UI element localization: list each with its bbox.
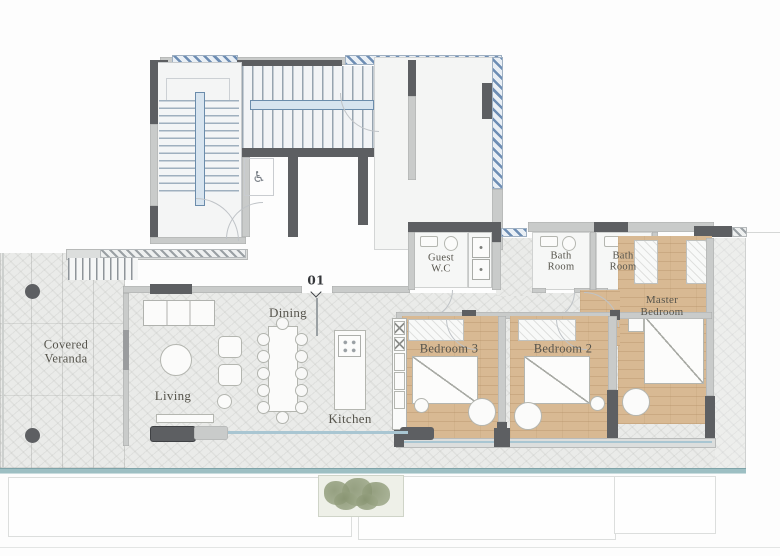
side-table	[217, 394, 232, 409]
wc-basin	[420, 236, 438, 247]
wc-right-wall-lower	[492, 242, 501, 290]
coffee-table	[160, 344, 192, 376]
bath-divider-wall	[590, 232, 596, 290]
armchair-1	[218, 336, 242, 358]
bedroom3-pouf	[468, 398, 496, 426]
bedroom-divider-wall	[498, 316, 506, 422]
bedroom-window-sill	[396, 438, 716, 448]
living-sliding-door-dark	[150, 426, 196, 442]
stair-rail	[195, 92, 205, 206]
living-left-wall-seg	[123, 330, 129, 370]
bedroom3-bed	[412, 356, 478, 404]
bath-room-1-label: Bath Room	[548, 251, 575, 274]
shelf-box-3	[394, 353, 405, 371]
sofa	[143, 300, 215, 326]
left-plot-border	[2, 253, 4, 469]
dining-chair	[276, 411, 289, 424]
stair-left-wall-upper	[150, 62, 158, 124]
bedroom-3-label: Bedroom 3	[420, 342, 479, 356]
bath1-toilet	[562, 236, 576, 251]
cooktop	[338, 335, 361, 357]
entry-left-wall-upper	[408, 60, 416, 96]
hall-hatch-wall	[501, 228, 527, 237]
bedroom2-pouf	[514, 402, 542, 430]
bottom-faint-line	[0, 547, 780, 548]
armchair-2	[218, 364, 242, 386]
bedroom2-master-dark-post	[607, 390, 618, 444]
bedroom2-master-wall	[608, 316, 617, 390]
pergola-hatch	[100, 249, 246, 258]
corridor-wall-2	[358, 157, 368, 225]
wc-drawer-2	[472, 259, 490, 280]
pergola-slats	[68, 258, 138, 280]
wc-toilet	[444, 236, 458, 251]
living-glass-wall	[228, 431, 408, 434]
tv-bench	[156, 414, 214, 423]
dining-chair	[257, 401, 270, 414]
foyer-top-wall	[332, 286, 410, 293]
dining-chair	[257, 350, 270, 363]
dining-chair	[257, 384, 270, 397]
right-terrace-strip	[714, 238, 746, 470]
bedroom-window-glass	[398, 441, 712, 443]
lower-terrace-panel-3	[614, 476, 716, 534]
master-closet-box-1	[634, 240, 658, 284]
guest-wc-label: Guest W.C	[428, 253, 454, 276]
entry-wall-panel	[482, 83, 492, 119]
wc-drawer-1	[472, 237, 490, 258]
master-bed	[644, 316, 704, 384]
shelf-xbox-1	[394, 321, 405, 335]
shelf-xbox-2	[394, 337, 405, 351]
veranda-column-1	[25, 284, 40, 299]
entry-right-hatch-wall	[492, 57, 503, 189]
dining-chair	[295, 401, 308, 414]
master-pouf	[622, 388, 650, 416]
bath-top-dark-seg-1	[594, 222, 628, 232]
bath1-basin	[540, 236, 558, 247]
dining-chair	[257, 367, 270, 380]
right-terrace-border	[745, 238, 746, 470]
kitchen-label: Kitchen	[328, 412, 371, 426]
entry-left-wall-lower	[408, 96, 416, 180]
dining-chair	[295, 333, 308, 346]
window-dark-post-2	[494, 428, 510, 447]
plant	[334, 492, 358, 510]
stair-left-wall-lower	[150, 206, 158, 238]
living-top-dark-seg	[150, 284, 192, 294]
covered-veranda-label: Covered Veranda	[44, 339, 88, 366]
living-label: Living	[155, 389, 191, 403]
dining-table	[268, 326, 298, 412]
shelf-box-4	[394, 372, 405, 390]
master-bedroom-label: Master Bedroom	[640, 295, 683, 319]
corridor-wall-1	[288, 157, 298, 237]
bedroom2-side-table	[590, 396, 605, 411]
dining-label: Dining	[269, 306, 307, 320]
veranda-column-2	[25, 428, 40, 443]
floor-plan-canvas: ♿ 01	[0, 0, 780, 556]
accessible-icon: ♿	[244, 158, 274, 196]
dining-chair	[257, 333, 270, 346]
wc-left-wall	[408, 232, 415, 290]
living-sliding-door-light	[194, 426, 228, 440]
terrace-edge-line	[0, 468, 746, 474]
plant	[356, 494, 378, 510]
corner-hatch-wall	[732, 227, 747, 237]
dining-chair	[295, 350, 308, 363]
master-right-dark-post	[705, 396, 715, 444]
dining-chair	[295, 384, 308, 397]
dining-chair	[295, 367, 308, 380]
bath-room-2-label: Bath Room	[610, 251, 637, 274]
lower-terrace-panel-1	[8, 477, 352, 537]
shelf-box-5	[394, 391, 405, 409]
bedroom-2-label: Bedroom 2	[534, 342, 593, 356]
bedroom2-bed	[524, 356, 590, 404]
corridor-top-wall	[242, 148, 374, 157]
wc-top-wall	[408, 222, 492, 232]
bedroom3-side-table	[414, 398, 429, 413]
stair-left-wall-mid	[150, 124, 158, 206]
foyer-partition-line	[316, 298, 318, 336]
wc-right-wall-upper	[492, 222, 501, 242]
bath1-sill-left	[532, 288, 546, 293]
